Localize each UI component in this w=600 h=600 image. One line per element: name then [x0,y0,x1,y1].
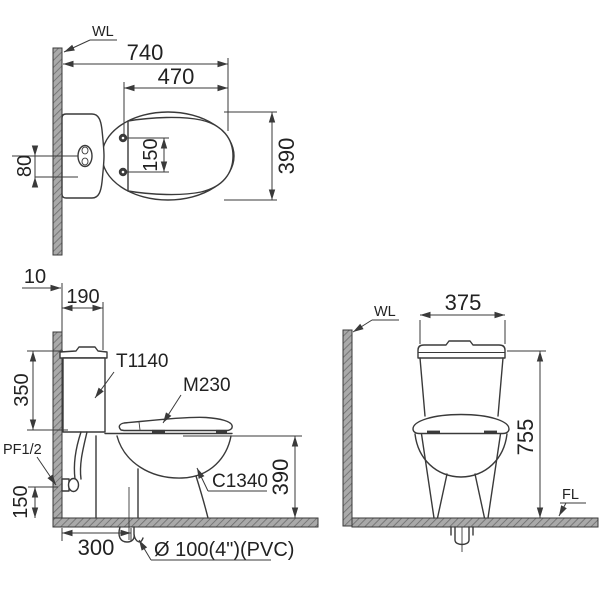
plan-view: WL 740 470 390 150 80 [12,24,299,255]
toilet-dimension-drawing: WL 740 470 390 150 80 [0,0,600,600]
front-view: WL FL 375 755 [343,290,598,552]
side-tank-lid [60,347,107,358]
front-leg-line [488,434,501,518]
seat-code-label: M230 [183,375,231,396]
bowl-code-label: C1340 [212,471,268,492]
plan-wall-hatch [53,48,62,255]
dim-rim-height-label: 390 [268,459,293,496]
front-leg-line [438,474,448,518]
dim-wall-offset-label: 10 [24,266,46,288]
dim-button-offset-label: 80 [14,155,36,177]
plan-wall-line-label: WL [92,24,114,40]
outlet-pipe-label: Ø 100(4")(PVC) [154,539,294,561]
side-seat-outline [119,417,232,430]
dim-width-label: 390 [274,138,299,175]
supply-hose-line [80,432,87,479]
dim-overall-length-label: 740 [127,40,164,65]
front-floor-hatch [352,518,598,527]
front-bowl-curve [415,434,507,477]
front-wall-hatch [343,330,352,526]
dim-overall-height-label: 755 [513,419,538,456]
front-leg-line [422,434,435,518]
dim-hinge-spacing-label: 150 [140,138,162,171]
inlet-fitting-label: PF1/2 [3,442,42,458]
leader-line [559,503,566,516]
front-wall-line-label: WL [374,304,396,320]
front-leg-line [475,474,485,518]
dim-tank-depth-label: 190 [66,286,99,308]
side-view: T1140 M230 C1340 PF1/2 Ø 100(4")(PVC) 10… [3,266,318,561]
dim-inlet-height-label: 150 [10,485,32,518]
side-tank-body [63,358,105,432]
side-wall-hatch [53,332,62,518]
hinge-bolt-bottom-dot [122,171,125,174]
tank-code-label: T1140 [116,351,168,372]
floor-line-label: FL [562,487,579,503]
side-floor-hatch [53,518,318,527]
supply-valve-body [69,479,79,492]
dim-outlet-distance-label: 300 [78,535,115,560]
hinge-bolt-top-dot [122,137,125,140]
side-drain-hook [134,535,143,542]
leader-line [353,320,372,332]
dim-tank-height-label: 350 [11,373,33,406]
dim-tank-width-label: 375 [445,290,482,315]
leader-line [139,540,151,560]
technical-drawing-page: WL 740 470 390 150 80 [0,0,600,600]
side-front-leg [196,476,208,518]
leader-line [64,40,90,52]
front-tank-lid [418,341,505,358]
front-tank-side [420,358,425,416]
side-drain-trap [119,527,134,542]
dim-seat-length-label: 470 [158,64,195,89]
front-tank-side [498,358,503,416]
